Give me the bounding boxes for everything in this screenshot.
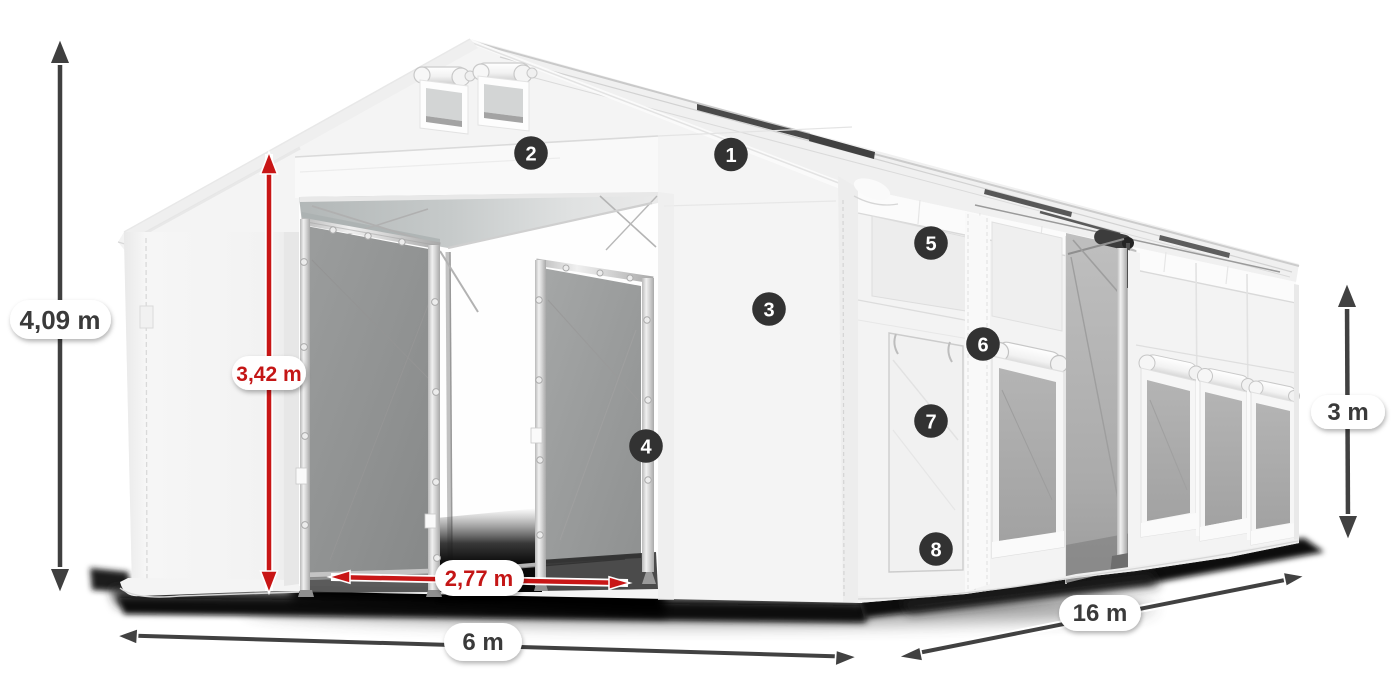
svg-text:3 m: 3 m [1327, 399, 1368, 426]
svg-text:6: 6 [977, 335, 988, 357]
svg-text:2,77 m: 2,77 m [445, 566, 514, 591]
svg-text:2: 2 [525, 144, 536, 166]
svg-text:4: 4 [640, 437, 652, 459]
svg-text:16 m: 16 m [1073, 600, 1128, 627]
svg-text:8: 8 [930, 540, 941, 562]
svg-text:3: 3 [763, 300, 774, 322]
svg-text:5: 5 [925, 234, 936, 256]
svg-text:6 m: 6 m [462, 629, 503, 656]
svg-text:7: 7 [925, 412, 936, 434]
svg-text:3,42 m: 3,42 m [236, 363, 301, 386]
svg-text:1: 1 [725, 145, 736, 167]
svg-text:4,09 m: 4,09 m [20, 305, 101, 335]
